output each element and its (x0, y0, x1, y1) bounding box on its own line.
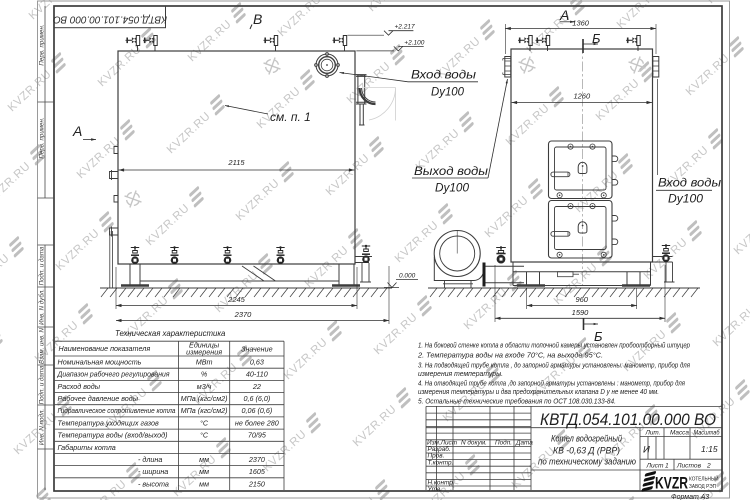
svg-text:измерения температуры.: измерения температуры. (418, 369, 503, 378)
svg-text:960: 960 (575, 295, 588, 304)
svg-text:мм: мм (199, 455, 209, 464)
svg-text:1590: 1590 (572, 308, 590, 317)
svg-text:м3/ч: м3/ч (197, 382, 212, 391)
svg-text:Номинальная мощность: Номинальная мощность (58, 358, 142, 367)
svg-text:2115: 2115 (227, 158, 245, 167)
svg-text:Взам. инв. N: Взам. инв. N (39, 327, 46, 364)
svg-text:- длина: - длина (138, 455, 162, 464)
svg-text:Подп.: Подп. (495, 438, 512, 446)
svg-text:КВТД.054.101.00.000 ВО: КВТД.054.101.00.000 ВО (53, 14, 167, 25)
svg-text:Т.контр.: Т.контр. (428, 460, 454, 467)
svg-text:Лит.: Лит. (645, 430, 661, 437)
svg-text:Значение: Значение (241, 344, 273, 353)
svg-text:2. Температура воды на входе: 2. Температура воды на входе 70°С, на вы… (417, 351, 603, 360)
svg-text:Лист: Лист (646, 462, 664, 469)
svg-text:°С: °С (200, 431, 209, 440)
svg-text:Масштаб: Масштаб (694, 429, 720, 437)
svg-text:+2.217: +2.217 (395, 24, 415, 31)
svg-text:N докум.: N докум. (461, 438, 487, 446)
svg-text:Инв. N дубл.: Инв. N дубл. (39, 289, 46, 325)
svg-text:70/95: 70/95 (248, 431, 267, 440)
svg-text:В: В (253, 11, 262, 27)
svg-text:0,06 (0,6): 0,06 (0,6) (241, 406, 272, 415)
svg-text:2150: 2150 (248, 479, 265, 488)
svg-text:Габариты котла: Габариты котла (58, 443, 116, 452)
svg-text:Рабочее давление воды: Рабочее давление воды (58, 394, 139, 403)
svg-text:см. п. 1: см. п. 1 (270, 110, 311, 124)
svg-text:КВ -0,63 Д (РВР): КВ -0,63 Д (РВР) (553, 446, 620, 457)
svg-text:МПа (кгс/см2): МПа (кгс/см2) (181, 394, 228, 403)
svg-text:Листов: Листов (676, 462, 702, 469)
svg-text:Наименование показателя: Наименование показателя (59, 344, 151, 353)
svg-text:по техническому заданию: по техническому заданию (538, 457, 636, 468)
svg-text:Техническая характеристика: Техническая характеристика (115, 329, 226, 338)
svg-text:°С: °С (200, 418, 209, 427)
svg-text:2370: 2370 (248, 455, 265, 464)
svg-text:Дата: Дата (515, 439, 533, 446)
svg-text:KVZR: KVZR (655, 474, 688, 493)
svg-text:Гидравлическое сопротивление к: Гидравлическое сопротивление котла (58, 406, 176, 415)
svg-text:Перв. примен.: Перв. примен. (39, 24, 46, 65)
svg-text:Утв.: Утв. (427, 486, 443, 493)
svg-text:0.000: 0.000 (399, 273, 416, 280)
svg-text:Инв. N подл.: Инв. N подл. (39, 409, 46, 445)
svg-text:- высота: - высота (138, 479, 169, 488)
svg-text:МВт: МВт (196, 358, 213, 367)
svg-text:%: % (201, 370, 208, 379)
svg-text:1605: 1605 (249, 467, 266, 476)
svg-text:мм: мм (199, 467, 209, 476)
svg-text:0,63: 0,63 (250, 358, 264, 367)
svg-text:1260: 1260 (573, 92, 591, 101)
svg-text:Диапазон рабочего регулировани: Диапазон рабочего регулирования (57, 370, 170, 379)
svg-text:2370: 2370 (234, 310, 253, 319)
svg-text:Котел водогрейный: Котел водогрейный (551, 434, 623, 445)
svg-text:Вход воды: Вход воды (411, 68, 476, 82)
svg-text:Dy100: Dy100 (435, 181, 469, 195)
svg-text:Подп. и дата: Подп. и дата (39, 365, 46, 404)
svg-text:Температура воды (вход/выход): Температура воды (вход/выход) (58, 431, 168, 440)
svg-text:1: 1 (665, 462, 669, 469)
svg-text:Dy100: Dy100 (431, 85, 464, 99)
svg-text:не более 280: не более 280 (235, 418, 279, 427)
svg-text:А: А (72, 123, 82, 139)
svg-text:Вход воды: Вход воды (658, 176, 721, 190)
svg-text:ЗАВОД РЭП: ЗАВОД РЭП (689, 484, 716, 490)
svg-text:2: 2 (706, 462, 711, 469)
svg-text:1360: 1360 (572, 19, 590, 28)
svg-text:40-110: 40-110 (246, 370, 268, 379)
svg-text:Масса: Масса (670, 430, 689, 437)
svg-text:Расход воды: Расход воды (58, 382, 101, 391)
svg-text:1. На боковой стенке котла в: 1. На боковой стенке котла в области топ… (418, 341, 690, 350)
svg-text:+2.100: +2.100 (404, 39, 424, 46)
svg-text:измерения температуры и два пр: измерения температуры и два предохраните… (418, 387, 659, 396)
svg-text:Температура уходящих газов: Температура уходящих газов (58, 418, 160, 427)
svg-text:1:15: 1:15 (701, 444, 718, 454)
svg-text:22: 22 (252, 382, 261, 391)
svg-text:0,6 (6,0): 0,6 (6,0) (243, 394, 270, 403)
svg-text:Перв. примен.: Перв. примен. (39, 117, 46, 158)
svg-text:Выход воды: Выход воды (414, 164, 488, 178)
svg-text:И: И (643, 445, 650, 456)
svg-text:2245: 2245 (227, 295, 246, 304)
svg-text:КОТЕЛЬНЫЙ: КОТЕЛЬНЫЙ (689, 475, 719, 483)
svg-text:мм: мм (199, 479, 209, 488)
svg-text:МПа (кгс/см2): МПа (кгс/см2) (181, 406, 228, 415)
svg-text:Подп. и дата: Подп. и дата (39, 246, 46, 285)
svg-text:- ширина: - ширина (138, 467, 168, 476)
svg-text:КВТД.054.101.00.000 ВО: КВТД.054.101.00.000 ВО (540, 411, 716, 429)
svg-text:5. Остальные технические треб: 5. Остальные технические требования по О… (418, 397, 616, 406)
svg-text:Формат А3: Формат А3 (671, 494, 709, 500)
svg-text:Dy100: Dy100 (668, 192, 703, 206)
svg-text:измерения: измерения (186, 347, 222, 356)
svg-text:А: А (559, 7, 569, 23)
svg-text:Пров.: Пров. (428, 453, 445, 460)
